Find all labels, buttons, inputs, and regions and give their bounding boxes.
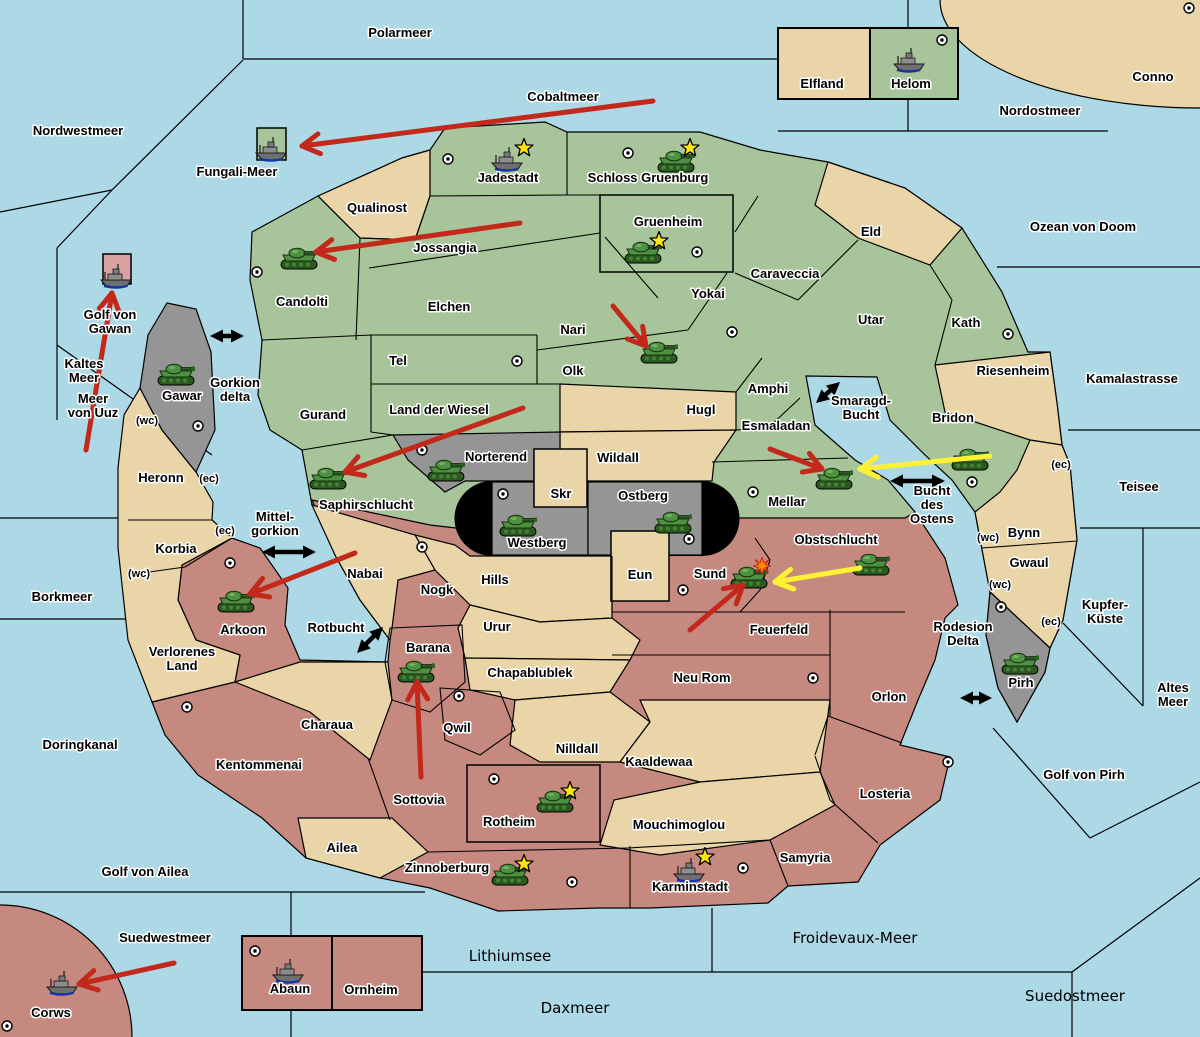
label-cobaltmeer: Cobaltmeer bbox=[527, 89, 599, 104]
city-dot bbox=[943, 757, 953, 767]
coast-marker: (ec) bbox=[1041, 616, 1061, 628]
label-polarmeer: Polarmeer bbox=[368, 25, 432, 40]
coast-marker: (ec) bbox=[215, 525, 235, 537]
label-chapablublek: Chapablublek bbox=[487, 665, 573, 680]
label-sund: Sund bbox=[694, 566, 727, 581]
label-helom: Helom bbox=[891, 76, 931, 91]
city-dot bbox=[727, 327, 737, 337]
label-schloss-gruenburg: Schloss Gruenburg bbox=[588, 170, 709, 185]
label-amphi: Amphi bbox=[748, 381, 788, 396]
label-tel: Tel bbox=[389, 353, 407, 368]
label-korbia: Korbia bbox=[155, 541, 197, 556]
label-gwaul: Gwaul bbox=[1009, 555, 1048, 570]
city-dot bbox=[967, 477, 977, 487]
coast-marker: (wc) bbox=[128, 568, 150, 580]
map-canvas: CandoltiQualinostJadestadtSchloss Gruenb… bbox=[0, 0, 1200, 1037]
label-ailea: Ailea bbox=[326, 840, 358, 855]
city-dot bbox=[225, 558, 235, 568]
label-conno: Conno bbox=[1132, 69, 1173, 84]
label-eld: Eld bbox=[861, 224, 881, 239]
city-dot bbox=[454, 691, 464, 701]
label-arkoon: Arkoon bbox=[220, 622, 266, 637]
city-dot bbox=[1003, 329, 1013, 339]
label-wildall: Wildall bbox=[597, 450, 639, 465]
label-nordostmeer: Nordostmeer bbox=[1000, 103, 1081, 118]
label-nari: Nari bbox=[560, 322, 585, 337]
label-golf-von-ailea: Golf von Ailea bbox=[102, 864, 190, 879]
label-skr: Skr bbox=[551, 486, 572, 501]
coast-marker: (wc) bbox=[989, 579, 1011, 591]
label-orlon: Orlon bbox=[872, 689, 907, 704]
region-kaaldewaa[interactable] bbox=[620, 700, 830, 782]
label-karminstadt: Karminstadt bbox=[652, 879, 729, 894]
label-bridon: Bridon bbox=[932, 410, 974, 425]
label-lithiumsee: Lithiumsee bbox=[469, 947, 551, 965]
city-dot bbox=[417, 542, 427, 552]
city-dot bbox=[498, 489, 508, 499]
label-jadestadt: Jadestadt bbox=[478, 170, 539, 185]
label-qwil: Qwil bbox=[443, 720, 470, 735]
game-map: CandoltiQualinostJadestadtSchloss Gruenb… bbox=[0, 0, 1200, 1037]
label-rotheim: Rotheim bbox=[483, 814, 535, 829]
label-borkmeer: Borkmeer bbox=[32, 589, 93, 604]
city-dot bbox=[2, 1021, 12, 1031]
city-dot bbox=[808, 673, 818, 683]
label-nabai: Nabai bbox=[347, 566, 382, 581]
label-gawar: Gawar bbox=[162, 388, 202, 403]
city-dot bbox=[738, 863, 748, 873]
label-jossangia: Jossangia bbox=[413, 240, 477, 255]
label-land-der-wiesel: Land der Wiesel bbox=[389, 402, 489, 417]
label-eun: Eun bbox=[628, 567, 653, 582]
coast-marker: (ec) bbox=[1051, 459, 1071, 471]
label-kentommenai: Kentommenai bbox=[216, 757, 302, 772]
label-caraveccia: Caraveccia bbox=[751, 266, 820, 281]
label-candolti: Candolti bbox=[276, 294, 328, 309]
label-mouchimoglou: Mouchimoglou bbox=[633, 817, 725, 832]
city-dot bbox=[1184, 3, 1194, 13]
label-saphirschlucht: Saphirschlucht bbox=[319, 497, 414, 512]
city-dot bbox=[748, 487, 758, 497]
city-dot bbox=[182, 702, 192, 712]
label-kath: Kath bbox=[952, 315, 981, 330]
region-ornheim[interactable] bbox=[332, 936, 422, 1010]
label-urur: Urur bbox=[483, 619, 510, 634]
city-dot bbox=[996, 602, 1006, 612]
region-gruenheim[interactable] bbox=[600, 195, 733, 272]
label-gurand: Gurand bbox=[300, 407, 346, 422]
label-nogk: Nogk bbox=[421, 582, 454, 597]
label-kupfer-kueste: Kupfer-Küste bbox=[1082, 597, 1128, 626]
coast-marker: (wc) bbox=[977, 532, 999, 544]
label-qualinost: Qualinost bbox=[347, 200, 408, 215]
city-dot bbox=[512, 356, 522, 366]
coast-marker: (ec) bbox=[199, 473, 219, 485]
label-norterend: Norterend bbox=[465, 449, 527, 464]
label-riesenheim: Riesenheim bbox=[977, 363, 1050, 378]
city-dot bbox=[252, 267, 262, 277]
label-ozean-von-doom: Ozean von Doom bbox=[1030, 219, 1136, 234]
label-zinnoberburg: Zinnoberburg bbox=[405, 860, 490, 875]
label-hills: Hills bbox=[481, 572, 508, 587]
label-pirh: Pirh bbox=[1008, 675, 1033, 690]
label-charaua: Charaua bbox=[301, 717, 354, 732]
city-dot bbox=[623, 148, 633, 158]
label-ornheim: Ornheim bbox=[344, 982, 397, 997]
label-samyria: Samyria bbox=[780, 850, 831, 865]
label-daxmeer: Daxmeer bbox=[541, 999, 611, 1017]
label-corws: Corws bbox=[31, 1005, 71, 1020]
region-rotheim[interactable] bbox=[467, 765, 600, 842]
label-bynn: Bynn bbox=[1008, 525, 1041, 540]
label-elfland: Elfland bbox=[800, 76, 843, 91]
label-nordwestmeer: Nordwestmeer bbox=[33, 123, 123, 138]
label-fungali-meer: Fungali-Meer bbox=[197, 164, 278, 179]
label-barana: Barana bbox=[406, 640, 451, 655]
label-ostberg: Ostberg bbox=[618, 488, 668, 503]
label-golf-von-pirh: Golf von Pirh bbox=[1043, 767, 1125, 782]
city-dot bbox=[567, 877, 577, 887]
city-dot bbox=[250, 946, 260, 956]
label-utar: Utar bbox=[858, 312, 884, 327]
city-dot bbox=[678, 585, 688, 595]
label-suedostmeer: Suedostmeer bbox=[1025, 987, 1126, 1005]
label-doringkanal: Doringkanal bbox=[42, 737, 117, 752]
label-teisee: Teisee bbox=[1119, 479, 1159, 494]
label-kaltes-meer: KaltesMeer bbox=[64, 356, 103, 385]
city-dot bbox=[443, 154, 453, 164]
label-obstschlucht: Obstschlucht bbox=[794, 532, 878, 547]
label-kamalastrasse: Kamalastrasse bbox=[1086, 371, 1178, 386]
label-westberg: Westberg bbox=[508, 535, 567, 550]
label-nilldall: Nilldall bbox=[556, 741, 599, 756]
label-golf-von-gawan: Golf vonGawan bbox=[84, 307, 137, 336]
city-dot bbox=[684, 534, 694, 544]
region-eun[interactable] bbox=[611, 531, 669, 601]
label-mittel-gorkion: Mittel-gorkion bbox=[251, 509, 299, 538]
label-suedwestmeer: Suedwestmeer bbox=[119, 930, 211, 945]
explosion-icon bbox=[753, 557, 771, 575]
label-gruenheim: Gruenheim bbox=[634, 214, 703, 229]
label-hugl: Hugl bbox=[687, 402, 716, 417]
label-mellar: Mellar bbox=[768, 494, 806, 509]
label-elchen: Elchen bbox=[428, 299, 471, 314]
label-kaaldewaa: Kaaldewaa bbox=[625, 754, 693, 769]
label-esmaladan: Esmaladan bbox=[742, 418, 811, 433]
city-dot bbox=[489, 774, 499, 784]
label-heronn: Heronn bbox=[138, 470, 184, 485]
city-dot bbox=[193, 421, 203, 431]
label-losteria: Losteria bbox=[860, 786, 911, 801]
label-froidevaux-meer: Froidevaux-Meer bbox=[793, 929, 919, 947]
label-rotbucht: Rotbucht bbox=[307, 620, 365, 635]
label-neu-rom: Neu Rom bbox=[673, 670, 730, 685]
coast-marker: (wc) bbox=[136, 415, 158, 427]
label-yokai: Yokai bbox=[691, 286, 725, 301]
label-altes-meer: AltesMeer bbox=[1157, 680, 1189, 709]
label-feuerfeld: Feuerfeld bbox=[750, 622, 809, 637]
label-olk: Olk bbox=[563, 363, 585, 378]
city-dot bbox=[692, 247, 702, 257]
city-dot bbox=[937, 35, 947, 45]
label-abaun: Abaun bbox=[270, 981, 311, 996]
label-sottovia: Sottovia bbox=[393, 792, 445, 807]
